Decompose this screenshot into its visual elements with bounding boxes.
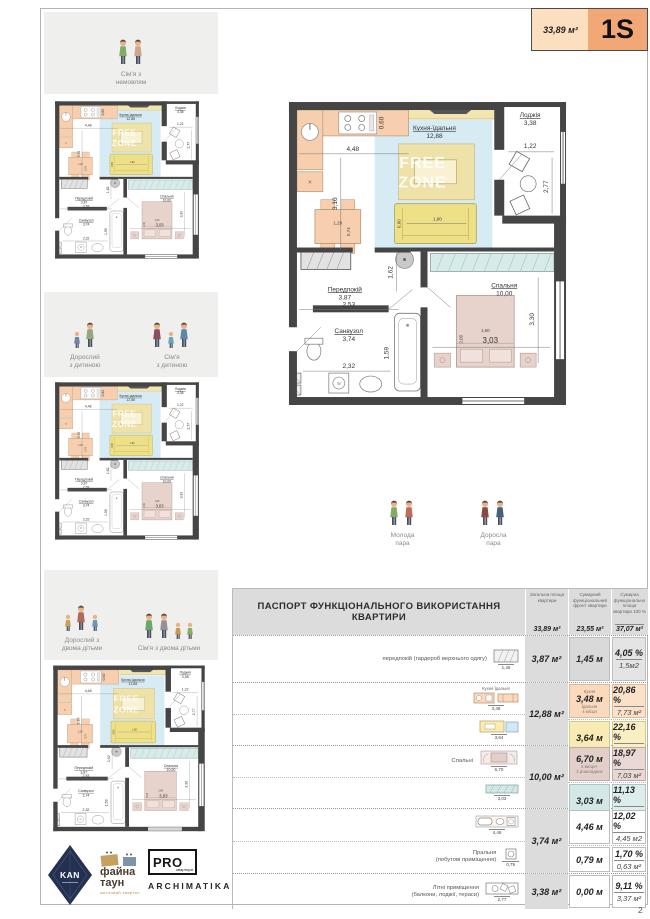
person-icon [75,605,89,632]
svg-text:1,60: 1,60 [481,328,490,333]
svg-text:2,00: 2,00 [458,334,463,343]
svg-text:3,87: 3,87 [338,294,351,301]
svg-text:1,22: 1,22 [524,143,537,150]
svg-text:4,48: 4,48 [346,146,359,153]
table-title: ПАСПОРТ ФУНКЦІОНАЛЬНОГО ВИКОРИСТАННЯ КВА… [233,589,525,635]
svg-text:Передпокій: Передпокій [328,285,362,293]
svg-text:0,74: 0,74 [346,227,351,236]
svg-text:Спальня: Спальня [491,282,517,289]
col-functional-area: Сумарна функціонально площа квартири 100… [611,589,647,635]
svg-text:Лоджія: Лоджія [520,111,541,119]
col-total-area: Загальна площа квартири 33,89 м² [525,589,568,635]
persona-caption: Доросла пара [481,532,507,548]
dining-table [315,210,361,244]
adult-couple-illustration: Доросла пара [479,500,508,548]
svg-text:1,62: 1,62 [388,266,395,279]
svg-text:12,88: 12,88 [426,133,443,140]
table-row-loggia: Літні приміщення (балкони, лоджії, терас… [233,873,648,909]
main-floorplan: × [283,92,572,421]
adult-child-illustration: Дорослий з дитиною [70,322,101,370]
svg-text:Кухня-їдальня: Кухня-їдальня [413,125,456,132]
passport-table: ПАСПОРТ ФУНКЦІОНАЛЬНОГО ВИКОРИСТАННЯ КВА… [232,588,648,909]
table-row-bedroom: Спальні 6,70 3,03 10,00 м² [233,745,648,808]
person-icon [479,500,493,527]
loggia-icon: 2,77 [485,882,519,902]
person-icon [178,322,192,349]
svg-text:2,53: 2,53 [342,301,355,308]
svg-text:0,60: 0,60 [379,116,386,129]
apartment-type-badge: 1S [588,8,648,51]
person-icon [132,39,146,66]
svg-text:3,38: 3,38 [524,120,537,127]
pro-logo: PRO квартири [148,849,197,875]
svg-text:ZONE: ZONE [398,175,446,192]
person-icon [117,39,131,66]
bed-icon: 6,70 [479,750,519,772]
table-header: ПАСПОРТ ФУНКЦІОНАЛЬНОГО ВИКОРИСТАННЯ КВА… [233,589,648,635]
col-functional-front: Сумарний функціональний фронт квартири 2… [568,589,611,635]
svg-text:Санвузол: Санвузол [334,328,363,335]
nightstand [520,353,536,367]
svg-text:3,30: 3,30 [529,313,536,326]
person-icon [403,500,417,527]
svg-text:3,03: 3,03 [483,336,499,345]
living-icon: 3,64 [479,720,519,740]
persona-card-row2: Дорослий з дитиною Сім'я з дитиною [44,292,218,377]
mini-floorplan-3 [50,660,208,840]
person-icon [143,613,157,640]
table-row-bathroom: 4,46 Пральня (побутові приміщення) 0,79 … [233,808,648,873]
family-child-illustration: Сім'я з дитиною [151,322,192,370]
person-icon [84,322,98,349]
adult-two-children-illustration: Дорослий з двома дітьми [62,605,102,653]
svg-text:KAN: KAN [60,870,80,880]
basin [360,376,382,392]
table-row-kitchen: Кухня Їдальня 3,48 3,64 12,88 м² Кух [233,682,648,745]
person-icon [90,614,101,632]
person-icon [158,613,172,640]
persona-card-row3: Дорослий з двома дітьми Сім'я з двома ді… [44,570,218,660]
logos-row: KAN файна таун житловий квартал PRO квар… [48,845,232,909]
svg-text:3,74: 3,74 [342,336,355,343]
person-icon [185,622,196,640]
svg-text:1,29: 1,29 [333,221,342,226]
svg-text:1,59: 1,59 [384,346,391,359]
svg-text:3,10: 3,10 [332,197,339,210]
person-icon [388,500,402,527]
svg-text:FREE: FREE [399,155,446,172]
persona-caption: Дорослий з дитиною [70,354,101,370]
persona-caption: Молода пара [391,532,415,548]
persona-caption: Сім'я з немовлям [116,71,146,87]
table-row-hallway: передпокій (гардероб верхнього одягу) 1,… [233,635,648,682]
hallway-icon: 1,45 [493,649,519,670]
mini-floorplan-1 [52,96,202,267]
kan-logo: KAN [48,845,92,905]
svg-text:1,80: 1,80 [433,217,442,222]
archimatika-logo: ARCHIMATIKA [148,881,232,891]
family-baby-illustration [117,39,146,66]
persona-caption: Сім'я з двома дітьми [138,645,200,653]
bathroom-icon: 4,46 [475,815,519,835]
page-number: 2 [638,905,643,915]
laundry-icon: 0,79 [502,848,519,867]
couples-row: Молода пара Доросла пара [388,500,508,548]
persona-card-family-baby: Сім'я з немовлям [44,12,218,94]
pro-archimatika: PRO квартири ARCHIMATIKA [148,849,232,891]
svg-text:10,00: 10,00 [496,290,513,297]
persona-caption: Дорослий з двома дітьми [62,637,102,653]
person-icon [173,622,184,640]
person-icon [151,322,165,349]
young-couple-illustration: Молода пара [388,500,417,548]
person-icon [166,331,177,349]
kitchen-icon: Кухня Їдальня 3,48 [473,686,519,711]
svg-text:2,77: 2,77 [543,180,550,193]
svg-text:2,32: 2,32 [342,363,355,370]
page: 33,89 м² 1S Сім'я з немовлям [0,0,650,919]
toilet [307,342,321,360]
family-two-children-illustration: Сім'я з двома дітьми [138,613,200,653]
nightstand [434,353,450,367]
person-icon [72,331,83,349]
apartment-area-badge: 33,89 м² [531,8,590,51]
fayna-logo: файна таун житловий квартал [100,851,140,895]
svg-text:0,60: 0,60 [397,219,402,228]
svg-text:×: × [308,180,312,187]
loggia-table [520,176,536,192]
persona-caption: Сім'я з дитиною [157,354,188,370]
person-icon [494,500,508,527]
mini-floorplan-2 [52,377,202,548]
wardrobe-icon: 3,03 [485,784,519,801]
person-icon [63,614,74,632]
